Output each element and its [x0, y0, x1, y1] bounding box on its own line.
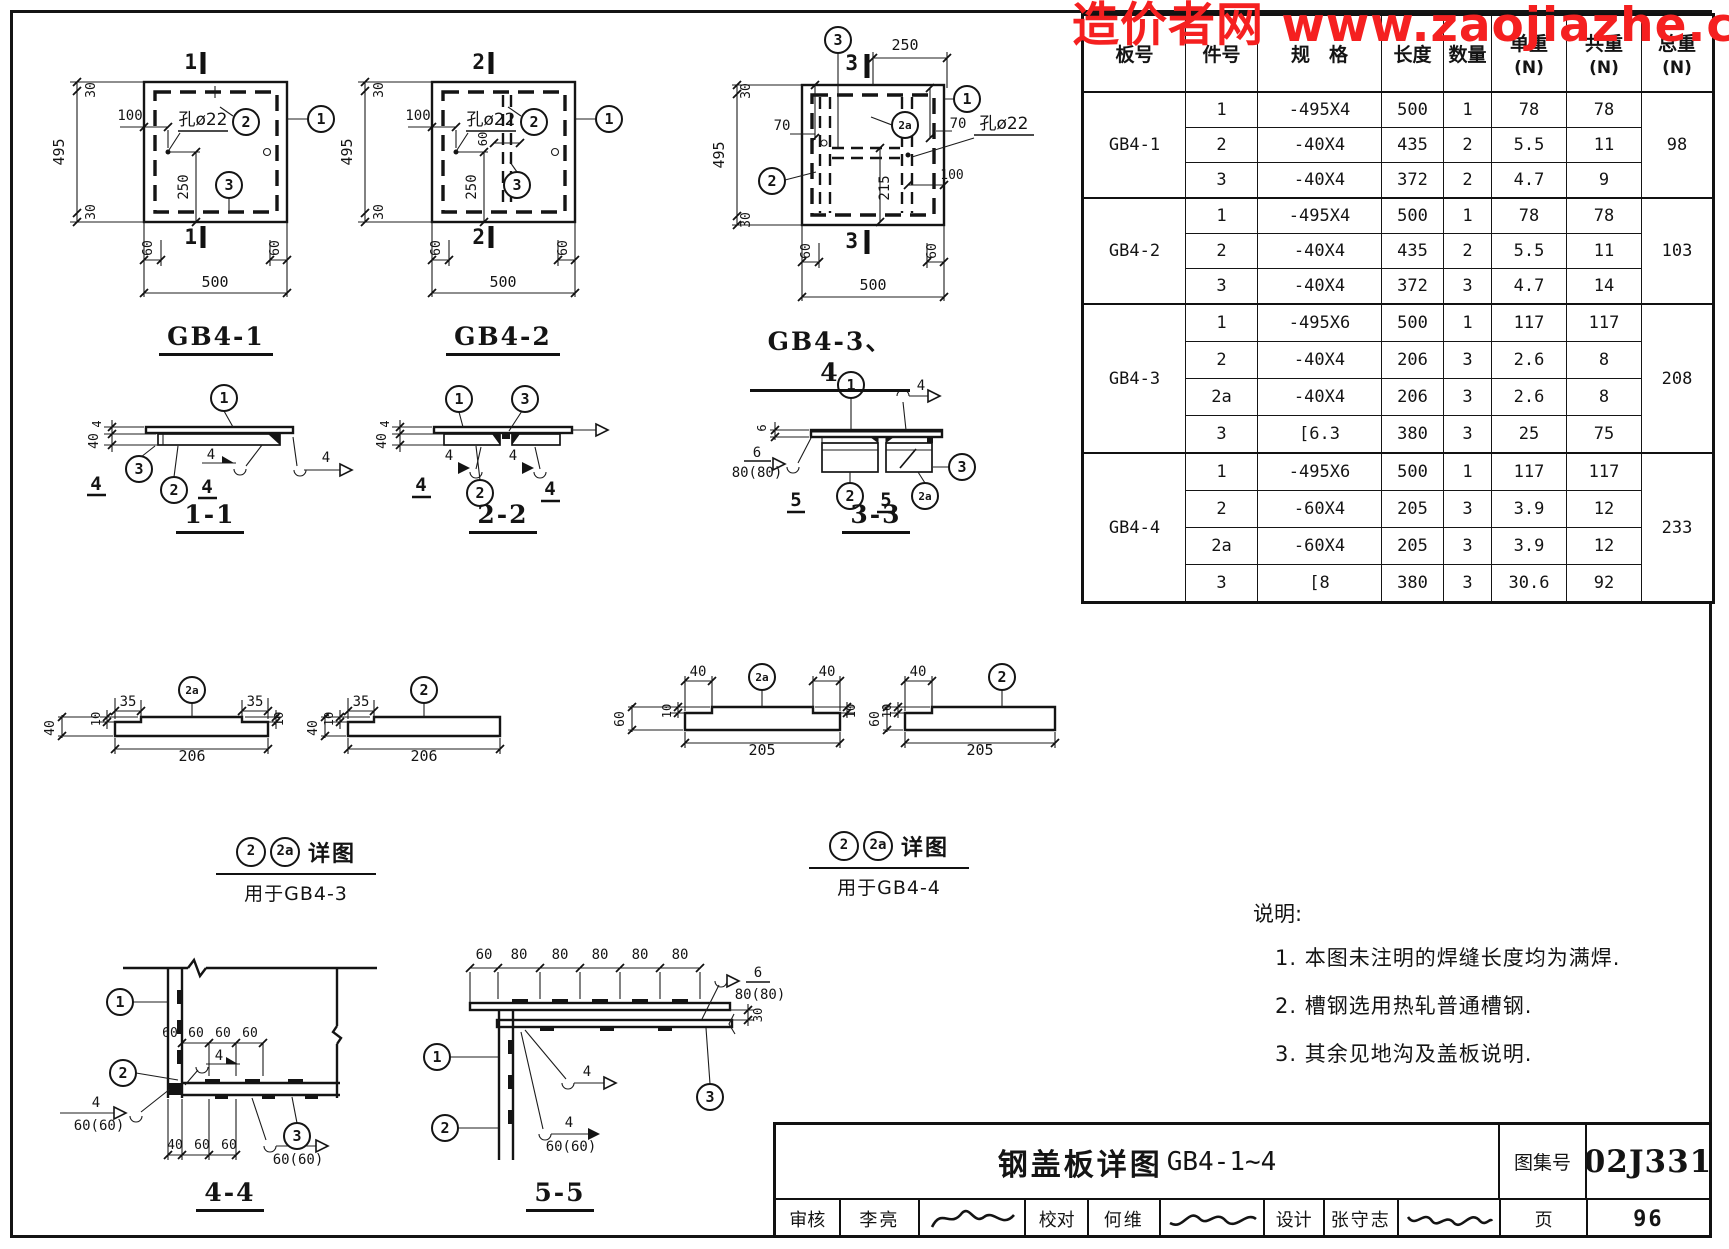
svg-text:1: 1 — [962, 90, 971, 108]
drawing-sheet: 114953030100孔ø222506060500224953030100孔ø… — [0, 0, 1729, 1249]
signature-designer — [1399, 1200, 1501, 1238]
dim-60-left: 60 — [141, 240, 156, 256]
bar-section — [158, 434, 280, 445]
signature-reviewer — [920, 1200, 1026, 1238]
table-cell: 117 — [1492, 304, 1567, 342]
dim-205: 205 — [748, 741, 775, 759]
dim-10: 10 — [660, 704, 674, 718]
table-cell: 12 — [1567, 528, 1642, 565]
hole-label: 孔ø22 — [979, 114, 1028, 134]
dim-10: 10 — [89, 712, 103, 726]
part-balloon-3: 3 — [216, 172, 242, 198]
cover-plate-section — [470, 1003, 730, 1010]
svg-text:1: 1 — [115, 993, 124, 1011]
table-cell: 1 — [1444, 92, 1492, 128]
dim-40: 40 — [819, 664, 836, 680]
table-cell: 3 — [1444, 565, 1492, 603]
table-cell: 117 — [1492, 453, 1567, 491]
table-cell: 3 — [1186, 163, 1258, 199]
table-cell: 30.6 — [1492, 565, 1567, 603]
dim-60-left: 60 — [429, 240, 444, 256]
table-cell: 206 — [1382, 379, 1444, 416]
table-cell: 75 — [1567, 416, 1642, 454]
dim-250: 250 — [176, 174, 192, 199]
weld-ref: 4 — [544, 478, 555, 500]
design-label: 设计 — [1265, 1200, 1325, 1238]
dim-60-right: 60 — [925, 243, 940, 259]
sheet-drawing-no: GB4-1~4 — [1167, 1147, 1277, 1177]
section-mark-3-bottom: 3 — [845, 229, 858, 253]
table-cell: 92 — [1567, 565, 1642, 603]
table-cell: 2 — [1186, 491, 1258, 528]
dim-495: 495 — [710, 141, 728, 168]
svg-text:3: 3 — [705, 1088, 714, 1106]
table-cell: -40X4 — [1258, 379, 1382, 416]
part-balloon-1: 1 — [107, 989, 133, 1015]
svg-text:2: 2 — [529, 113, 538, 131]
dim-500: 500 — [489, 273, 516, 291]
table-cell: 1 — [1444, 304, 1492, 342]
svg-text:1: 1 — [316, 110, 325, 128]
table-cell: -60X4 — [1258, 528, 1382, 565]
table-cell: 500 — [1382, 198, 1444, 234]
weld-size: 4 — [509, 448, 517, 464]
dim-60: 60 — [476, 947, 493, 963]
weld-size: 4 — [215, 1048, 223, 1064]
plate-outline — [144, 82, 287, 222]
table-cell: 2 — [1186, 234, 1258, 269]
table-cell: 2 — [1444, 163, 1492, 199]
part-balloon-1: 1 — [211, 385, 237, 411]
table-cell: 8 — [1567, 342, 1642, 379]
table-cell: -40X4 — [1258, 234, 1382, 269]
dim-80: 80 — [511, 947, 528, 963]
table-cell: 4.7 — [1492, 163, 1567, 199]
table-cell: 2a — [1186, 379, 1258, 416]
dim-60-inner: 60 — [476, 132, 490, 146]
table-cell: 8 — [1567, 379, 1642, 416]
notes-heading: 说明: — [1253, 898, 1673, 928]
part-balloon-3: 3 — [825, 27, 851, 53]
board-number: GB4-3 — [1083, 304, 1186, 453]
table-cell: -40X4 — [1258, 269, 1382, 305]
svg-text:3: 3 — [833, 31, 842, 49]
svg-text:2a: 2a — [898, 119, 911, 132]
dim-40: 40 — [43, 720, 58, 736]
table-cell: 14 — [1567, 269, 1642, 305]
part-balloon-2a: 2a — [892, 112, 918, 138]
figure-title-gb4-1: GB4-1 — [156, 322, 276, 356]
review-label: 审核 — [776, 1200, 841, 1238]
svg-text:1: 1 — [432, 1048, 441, 1066]
bar-profile-2 — [348, 717, 500, 736]
dim-70-left: 70 — [774, 118, 791, 134]
check-name: 何维 — [1089, 1200, 1161, 1238]
table-cell: 78 — [1492, 198, 1567, 234]
channel-section — [822, 443, 878, 472]
dim-60: 60 — [194, 1138, 210, 1153]
dim-60-left: 60 — [799, 243, 814, 259]
dim-215: 215 — [877, 175, 893, 200]
part-balloon-3: 3 — [949, 454, 975, 480]
table-cell: 1 — [1186, 304, 1258, 342]
weld-size: 4 — [322, 450, 330, 466]
table-cell: 1 — [1444, 198, 1492, 234]
weld-ref: 4 — [201, 476, 212, 498]
dim-495: 495 — [50, 138, 68, 165]
section-title-1-1: 1-1 — [150, 500, 270, 534]
dim-100: 100 — [405, 108, 430, 124]
part-balloon-2: 2 — [521, 109, 547, 135]
hole — [821, 140, 827, 146]
caption-label: 详图 — [901, 830, 949, 862]
dim-206: 206 — [410, 747, 437, 765]
hole — [552, 149, 559, 156]
part-balloon-2: 2 — [233, 109, 259, 135]
dim-205: 205 — [966, 741, 993, 759]
detail-caption-gb4-4: 2 2a 详图 用于GB4-4 — [809, 830, 969, 900]
section-mark-2-bottom: 2 — [472, 225, 485, 249]
svg-text:2: 2 — [419, 681, 428, 699]
table-cell: 2 — [1444, 128, 1492, 163]
weld-size: 4 — [445, 448, 453, 464]
table-cell: 3 — [1186, 565, 1258, 603]
weld-length: 60(60) — [74, 1118, 125, 1134]
weld-size: 4 — [917, 378, 925, 394]
part-balloon-2: 2 — [432, 1115, 458, 1141]
bar-profile-2a — [115, 717, 268, 736]
dim-60: 60 — [868, 711, 883, 727]
weld-size: 4 — [583, 1064, 591, 1080]
dim-206: 206 — [178, 747, 205, 765]
caption-target: 用于GB4-3 — [216, 879, 376, 906]
caption-label: 详图 — [308, 836, 356, 868]
check-label: 校对 — [1026, 1200, 1089, 1238]
svg-text:1: 1 — [219, 389, 228, 407]
table-cell: 117 — [1567, 453, 1642, 491]
table-cell: [6.3 — [1258, 416, 1382, 454]
total-weight: 233 — [1642, 453, 1714, 603]
dim-40: 40 — [690, 664, 707, 680]
table-cell: 11 — [1567, 234, 1642, 269]
total-weight: 103 — [1642, 198, 1714, 304]
lower-plate-section — [497, 1020, 732, 1027]
section-title-3-3: 3-3 — [816, 500, 936, 534]
dim-60-right: 60 — [268, 240, 283, 256]
section-mark-2-top: 2 — [472, 50, 485, 74]
table-cell: 3 — [1186, 269, 1258, 305]
part-balloon-3: 3 — [126, 456, 152, 482]
dim-250: 250 — [891, 36, 918, 54]
dim-35: 35 — [247, 694, 264, 710]
table-cell: 9 — [1567, 163, 1642, 199]
dim-100: 100 — [940, 168, 963, 183]
balloon-2a: 2a — [863, 831, 893, 861]
dim-40: 40 — [375, 433, 390, 449]
total-weight: 208 — [1642, 304, 1714, 453]
table-cell: 12 — [1567, 491, 1642, 528]
part-balloon-2a: 2a — [749, 664, 775, 690]
part-balloon-3: 3 — [504, 172, 530, 198]
dim-40: 40 — [87, 433, 102, 449]
section-mark-1-top: 1 — [184, 50, 197, 74]
parts-table: 板号件号规 格长度数量单重(N)共重(N)总重(N)GB4-11-495X450… — [1081, 13, 1715, 604]
table-cell: 3 — [1444, 491, 1492, 528]
dim-10: 10 — [844, 704, 858, 718]
board-number: GB4-4 — [1083, 453, 1186, 603]
dim-10: 10 — [272, 712, 286, 726]
table-cell: 2 — [1186, 342, 1258, 379]
dim-30: 30 — [751, 1008, 765, 1022]
table-cell: 372 — [1382, 269, 1444, 305]
svg-text:2a: 2a — [755, 671, 768, 684]
part-balloon-1: 1 — [424, 1044, 450, 1070]
table-cell: 3 — [1444, 416, 1492, 454]
plate-outline — [802, 85, 944, 225]
table-cell: 500 — [1382, 453, 1444, 491]
part-balloon-2: 2 — [411, 677, 437, 703]
dim-60: 60 — [242, 1026, 258, 1041]
board-number: GB4-2 — [1083, 198, 1186, 304]
design-name: 张守志 — [1325, 1200, 1400, 1238]
table-cell: [8 — [1258, 565, 1382, 603]
table-cell: 11 — [1567, 128, 1642, 163]
dim-6: 6 — [755, 424, 769, 431]
weld-length: 80(80) — [735, 987, 786, 1003]
table-cell: 78 — [1492, 92, 1567, 128]
dim-80: 80 — [672, 947, 689, 963]
part-balloon-3: 3 — [512, 386, 538, 412]
figure-title-gb4-3-4: GB4-3、4 — [750, 322, 910, 392]
weld-size: 6 — [753, 445, 761, 461]
table-cell: 4.7 — [1492, 269, 1567, 305]
part-balloon-3: 3 — [697, 1084, 723, 1110]
dim-80: 80 — [552, 947, 569, 963]
signature-checker — [1161, 1200, 1265, 1238]
dim-30-bottom: 30 — [739, 212, 754, 228]
dim-35: 35 — [353, 694, 370, 710]
bar-profile-2 — [905, 707, 1055, 730]
part-balloon-2: 2 — [989, 664, 1015, 690]
hole-center — [166, 150, 171, 155]
figure-title-gb4-2: GB4-2 — [443, 322, 563, 356]
svg-text:3: 3 — [520, 390, 529, 408]
hole-center — [454, 150, 459, 155]
weld-size: 4 — [92, 1095, 100, 1111]
table-cell: 2.6 — [1492, 342, 1567, 379]
table-cell: -495X4 — [1258, 198, 1382, 234]
dim-40: 40 — [910, 664, 927, 680]
table-cell: 3 — [1444, 379, 1492, 416]
dim-30-top: 30 — [739, 83, 754, 99]
table-cell: -495X6 — [1258, 453, 1382, 491]
table-cell: 380 — [1382, 416, 1444, 454]
total-weight: 98 — [1642, 92, 1714, 198]
part-balloon-1: 1 — [446, 386, 472, 412]
table-cell: 500 — [1382, 92, 1444, 128]
cover-plate-section — [434, 427, 572, 433]
svg-text:3: 3 — [512, 176, 521, 194]
table-cell: 3 — [1186, 416, 1258, 454]
dim-60-right: 60 — [556, 240, 571, 256]
table-cell: 78 — [1567, 198, 1642, 234]
balloon-2a: 2a — [270, 837, 300, 867]
watermark-text: 造价者网 www.zaojiazhe.co — [1072, 0, 1729, 55]
hole — [264, 149, 271, 156]
table-cell: 435 — [1382, 128, 1444, 163]
table-cell: 435 — [1382, 234, 1444, 269]
table-cell: -495X4 — [1258, 92, 1382, 128]
table-cell: 380 — [1382, 565, 1444, 603]
dim-500: 500 — [859, 276, 886, 294]
dim-250: 250 — [464, 174, 480, 199]
balloon-2: 2 — [236, 837, 266, 867]
svg-text:2: 2 — [118, 1064, 127, 1082]
table-cell: 78 — [1567, 92, 1642, 128]
part-balloon-1: 1 — [308, 106, 334, 132]
weld-size: 6 — [754, 965, 762, 981]
section-title-2-2: 2-2 — [443, 500, 563, 534]
svg-text:1: 1 — [604, 110, 613, 128]
parts-table-wrap: 板号件号规 格长度数量单重(N)共重(N)总重(N)GB4-11-495X450… — [1081, 13, 1715, 604]
dim-40: 40 — [167, 1138, 183, 1153]
table-cell: -40X4 — [1258, 342, 1382, 379]
svg-text:3: 3 — [224, 176, 233, 194]
table-cell: 205 — [1382, 528, 1444, 565]
svg-text:3: 3 — [957, 458, 966, 476]
table-cell: 206 — [1382, 342, 1444, 379]
note-item: 3. 其余见地沟及盖板说明. — [1275, 1038, 1673, 1068]
svg-text:2: 2 — [241, 113, 250, 131]
dim-500: 500 — [201, 273, 228, 291]
dim-30-top: 30 — [84, 82, 99, 98]
title-block: 钢盖板详图 GB4-1~4 图集号 02J331 审核 李亮 校对 何维 设计 … — [773, 1122, 1712, 1238]
part-balloon-2: 2 — [110, 1060, 136, 1086]
svg-text:1: 1 — [454, 390, 463, 408]
table-cell: 5.5 — [1492, 128, 1567, 163]
svg-text:3: 3 — [292, 1127, 301, 1145]
section-title-4-4: 4-4 — [170, 1178, 290, 1212]
hole-label: 孔ø22 — [178, 110, 227, 130]
dim-10: 10 — [322, 712, 336, 726]
caption-target: 用于GB4-4 — [809, 873, 969, 900]
part-balloon-3: 3 — [284, 1123, 310, 1149]
dim-30-bottom: 30 — [372, 204, 387, 220]
hole-label: 孔ø22 — [466, 110, 515, 130]
table-cell: 3 — [1444, 528, 1492, 565]
notes-block: 说明: 1. 本图未注明的焊缝长度均为满焊.2. 槽钢选用热轧普通槽钢.3. 其… — [1253, 898, 1673, 1086]
section-mark-3-top: 3 — [845, 51, 858, 75]
dim-60: 60 — [221, 1138, 237, 1153]
weld-ref: 5 — [790, 489, 801, 511]
cover-plate-section — [146, 427, 293, 433]
sheet-title: 钢盖板详图 — [998, 1140, 1163, 1184]
note-item: 1. 本图未注明的焊缝长度均为满焊. — [1275, 942, 1673, 972]
dim-80: 80 — [632, 947, 649, 963]
review-name: 李亮 — [841, 1200, 920, 1238]
dim-30-bottom: 30 — [84, 204, 99, 220]
note-item: 2. 槽钢选用热轧普通槽钢. — [1275, 990, 1673, 1020]
svg-text:3: 3 — [134, 460, 143, 478]
dim-60: 60 — [215, 1026, 231, 1041]
weld-length: 60(60) — [546, 1139, 597, 1155]
dim-40: 40 — [306, 720, 321, 736]
bar-section — [444, 434, 500, 445]
dim-30-top: 30 — [372, 82, 387, 98]
svg-text:2: 2 — [440, 1119, 449, 1137]
dim-80: 80 — [592, 947, 609, 963]
part-balloon-1: 1 — [954, 86, 980, 112]
dim-35: 35 — [120, 694, 137, 710]
table-cell: -495X6 — [1258, 304, 1382, 342]
page-number: 96 — [1588, 1200, 1709, 1238]
atlas-no-value: 02J331 — [1587, 1125, 1709, 1198]
weld-ref: 4 — [90, 473, 101, 495]
table-cell: -60X4 — [1258, 491, 1382, 528]
table-cell: 2 — [1444, 234, 1492, 269]
atlas-no-label: 图集号 — [1500, 1125, 1587, 1198]
table-cell: 2.6 — [1492, 379, 1567, 416]
table-cell: 3 — [1444, 269, 1492, 305]
table-cell: 1 — [1186, 453, 1258, 491]
table-cell: 205 — [1382, 491, 1444, 528]
dim-100: 100 — [117, 108, 142, 124]
table-cell: 3.9 — [1492, 528, 1567, 565]
balloon-2: 2 — [829, 831, 859, 861]
section-mark-1-bottom: 1 — [184, 225, 197, 249]
board-number: GB4-1 — [1083, 92, 1186, 198]
weld-size: 4 — [207, 447, 215, 463]
weld-ref: 4 — [415, 474, 426, 496]
svg-text:2: 2 — [169, 481, 178, 499]
weld-size: 4 — [565, 1115, 573, 1131]
dim-70-right: 70 — [950, 116, 967, 132]
dim-60: 60 — [188, 1026, 204, 1041]
dim-4: 4 — [378, 420, 392, 427]
table-cell: 1 — [1186, 92, 1258, 128]
table-cell: 372 — [1382, 163, 1444, 199]
svg-text:2: 2 — [767, 172, 776, 190]
bar-profile-2a — [685, 707, 840, 730]
sheet-title-cell: 钢盖板详图 GB4-1~4 — [776, 1125, 1500, 1198]
table-cell: 2a — [1186, 528, 1258, 565]
dim-60: 60 — [613, 711, 628, 727]
bar-section — [512, 434, 560, 445]
table-cell: -40X4 — [1258, 128, 1382, 163]
weld-length: 80(80) — [732, 465, 783, 481]
table-cell: 117 — [1567, 304, 1642, 342]
table-cell: 5.5 — [1492, 234, 1567, 269]
table-cell: -40X4 — [1258, 163, 1382, 199]
svg-text:2: 2 — [997, 668, 1006, 686]
table-cell: 1 — [1186, 198, 1258, 234]
part-balloon-1: 1 — [596, 106, 622, 132]
section-title-5-5: 5-5 — [500, 1178, 620, 1212]
table-cell: 25 — [1492, 416, 1567, 454]
table-cell: 3.9 — [1492, 491, 1567, 528]
dimension-labels: 114953030100孔ø222506060500224953030100孔ø… — [43, 36, 1029, 1168]
part-balloon-2a: 2a — [179, 677, 205, 703]
table-cell: 3 — [1444, 342, 1492, 379]
dim-60: 60 — [162, 1026, 178, 1041]
svg-text:2a: 2a — [185, 684, 198, 697]
part-balloon-2: 2 — [759, 168, 785, 194]
table-cell: 1 — [1444, 453, 1492, 491]
page-label: 页 — [1501, 1200, 1587, 1238]
table-cell: 2 — [1186, 128, 1258, 163]
hole-center — [906, 153, 911, 158]
table-cell: 500 — [1382, 304, 1444, 342]
